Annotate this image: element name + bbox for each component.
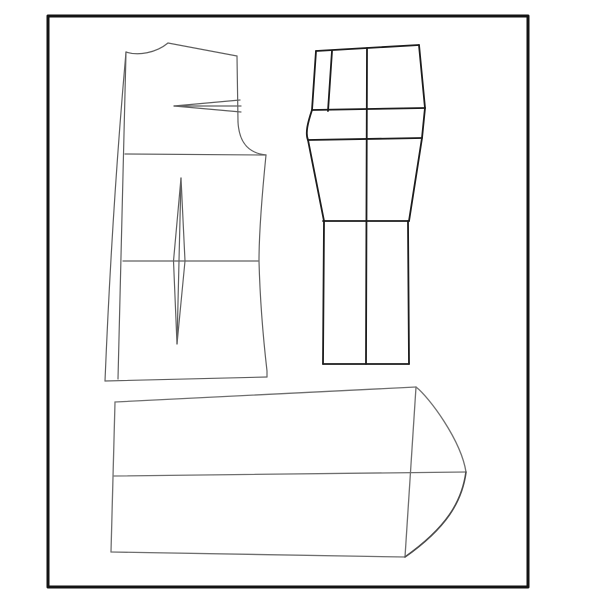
trouser-front-piece [307, 45, 425, 364]
sleeve-cap-curve-lower [405, 472, 466, 557]
sleeve-top-edge [115, 387, 416, 402]
bodice-front-neckline-curve [126, 43, 168, 54]
trouser-front-inseam-upper [308, 140, 324, 221]
sewing-pattern-diagram [0, 0, 600, 600]
bodice-front-shoulder-dart-lower-leg [174, 106, 241, 112]
trouser-front-crotch-curve [307, 110, 312, 140]
bodice-front-hem-line [105, 377, 267, 381]
bodice-front-side-seam [259, 155, 267, 377]
sleeve-center-fold-line [114, 472, 466, 476]
trouser-front-fly-panel-line [328, 51, 332, 111]
pattern-sheet [0, 0, 600, 600]
bodice-front-bust-panel-seam [125, 154, 266, 155]
sleeve-underarm-left-edge [111, 402, 115, 552]
bodice-front-piece [105, 43, 267, 381]
sleeve-cap-curve-upper [416, 387, 466, 472]
trouser-front-leg-inseam-lower [323, 221, 324, 364]
trouser-front-crotch-line [308, 138, 422, 140]
sleeve-piece [111, 387, 466, 557]
trouser-front-center-front-edge [312, 51, 316, 110]
trouser-front-side-seam-upper [419, 45, 425, 108]
trouser-front-side-seam-lower [409, 108, 425, 221]
bodice-front-shoulder-seam [168, 43, 237, 56]
sleeve-bottom-edge [111, 552, 405, 557]
bodice-front-shoulder-dart-upper-leg [174, 100, 240, 106]
trouser-front-leg-side-lower [408, 221, 409, 364]
bodice-front-center-front-outer-line [105, 52, 126, 381]
bodice-front-armhole-curve [238, 122, 266, 155]
trouser-front-crease-line [366, 48, 367, 364]
